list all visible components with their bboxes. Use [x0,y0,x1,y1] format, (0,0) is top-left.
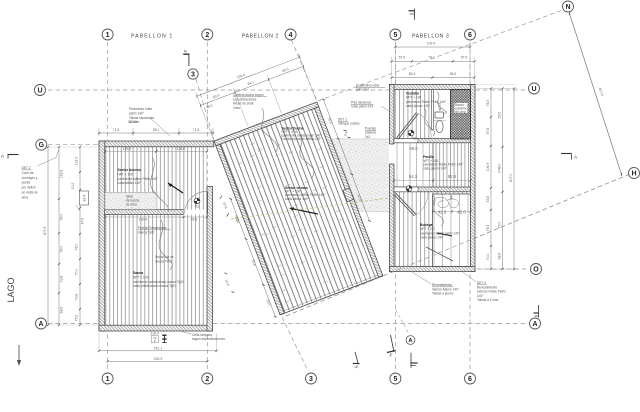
svg-text:PABELLON 3: PABELLON 3 [412,34,449,40]
svg-text:Tabique postes: Tabique postes [338,122,360,126]
svg-text:82.8: 82.8 [448,174,457,179]
svg-text:43.6: 43.6 [486,196,490,203]
svg-text:cada tablas 140°: cada tablas 140° [118,181,143,185]
svg-text:65.3: 65.3 [191,218,198,222]
svg-text:6: 6 [468,32,472,39]
svg-text:3: 3 [309,376,313,383]
svg-text:F: F [154,339,156,343]
svg-text:70.0: 70.0 [75,269,79,276]
svg-text:A: A [38,321,43,328]
svg-text:cada tablas 140°: cada tablas 140° [285,197,310,201]
svg-text:U: U [531,86,536,93]
svg-text:407.9: 407.9 [43,227,47,236]
svg-text:H: H [631,170,636,177]
svg-text:106.9: 106.9 [486,163,490,172]
svg-text:O: O [533,266,539,273]
svg-text:cada plomo 140°: cada plomo 140° [406,104,431,108]
svg-text:407.0: 407.0 [509,174,513,183]
svg-text:A6: A6 [413,137,417,141]
svg-text:6: 6 [468,376,472,383]
svg-text:Puerta Prefabricada: Puerta Prefabricada [138,226,167,230]
svg-text:68.5: 68.5 [498,253,502,260]
svg-text:85.6: 85.6 [450,72,457,76]
svg-text:2: 2 [205,376,209,383]
svg-text:Tablas a 2 cms: Tablas a 2 cms [477,298,499,302]
svg-text:1: 1 [106,376,110,383]
svg-text:LAGO: LAGO [6,277,16,302]
svg-text:U: U [37,87,42,94]
svg-text:P2: P2 [195,205,199,209]
svg-text:109.9: 109.9 [427,42,436,46]
svg-text:obra: obra [22,195,29,199]
svg-text:78.3: 78.3 [486,100,490,107]
svg-text:roble pellín 2X3: roble pellín 2X3 [351,105,373,109]
svg-text:pavimento prefabricado marca T: pavimento prefabricado marca TylO [133,280,184,284]
svg-text:2x2: 2x2 [365,135,370,139]
svg-text:A: A [1,154,4,159]
svg-text:241.1: 241.1 [154,347,163,351]
svg-text:M: M [184,50,187,54]
svg-text:PABELLON 2: PABELLON 2 [242,34,279,40]
svg-text:79.1: 79.1 [428,56,435,60]
svg-text:94.3: 94.3 [409,174,418,179]
svg-text:125.0: 125.0 [177,147,186,151]
svg-text:96.0: 96.0 [409,146,418,151]
svg-text:85.3: 85.3 [409,72,416,76]
svg-text:PABELLON 1: PABELLON 1 [131,34,173,40]
svg-text:73.8: 73.8 [75,294,79,301]
svg-text:de obra: de obra [126,203,137,207]
svg-text:de obra: de obra [455,110,466,114]
svg-text:5: 5 [393,32,397,39]
svg-text:42.0: 42.0 [457,210,466,215]
svg-text:cada plomo 140°: cada plomo 140° [420,236,445,240]
svg-text:119.5: 119.5 [75,157,79,165]
svg-text:71.5: 71.5 [113,128,120,132]
svg-text:palin 2x3: palin 2x3 [356,88,369,92]
svg-text:Tablas a plomo: Tablas a plomo [432,292,454,296]
svg-text:G: G [39,142,45,149]
svg-text:4: 4 [289,32,293,39]
svg-text:P46.0: P46.0 [498,163,502,172]
svg-text:hormigón y: hormigón y [22,176,38,180]
svg-text:Pavimento roble: Pavimento roble [129,107,152,111]
svg-text:cada plomo 140°: cada plomo 140° [423,166,448,170]
svg-text:por definir: por definir [22,186,37,190]
svg-text:pellín 140°: pellín 140° [129,111,145,115]
svg-text:68.5: 68.5 [60,307,64,314]
svg-text:1: 1 [106,32,110,39]
svg-text:98.1: 98.1 [153,128,160,132]
svg-text:70.0: 70.0 [486,254,490,261]
svg-text:73.8: 73.8 [60,276,64,283]
svg-text:129.8: 129.8 [60,170,64,179]
svg-text:según especificaciones: según especificaciones [192,337,225,341]
svg-text:220.9: 220.9 [154,357,163,361]
svg-text:NPT + 100: NPT + 100 [118,172,133,176]
svg-text:75.0: 75.0 [498,222,502,229]
svg-text:N: N [565,4,570,11]
svg-text:DET 2: DET 2 [22,166,31,170]
svg-text:57.5: 57.5 [461,56,468,60]
svg-text:160.4: 160.4 [139,218,148,222]
svg-text:en visita de: en visita de [22,191,38,195]
svg-text:59.5: 59.5 [498,112,502,119]
svg-text:82.4: 82.4 [83,195,87,202]
svg-text:47.6: 47.6 [81,218,85,225]
svg-text:75.6: 75.6 [75,315,79,322]
svg-text:Sauna: Sauna [133,271,143,275]
svg-text:32.4/6: 32.4/6 [128,120,137,124]
svg-text:76.0: 76.0 [60,214,64,221]
svg-text:57.6: 57.6 [486,128,490,135]
svg-text:A: A [574,155,577,160]
svg-text:3: 3 [191,71,195,78]
svg-text:57.5: 57.5 [399,56,406,60]
svg-text:Sector Acceso: Sector Acceso [118,168,141,172]
svg-text:pavimento tablas Pellin 140°: pavimento tablas Pellin 140° [118,177,159,181]
svg-text:c/tabla s/pradols tablas 140°: c/tabla s/pradols tablas 140° [282,137,323,141]
svg-text:5: 5 [393,376,397,383]
svg-text:postre: postre [22,181,31,185]
svg-text:20.2: 20.2 [71,183,75,190]
svg-text:78.5: 78.5 [486,225,490,232]
svg-text:76.0: 76.0 [75,244,79,251]
svg-text:2mts: 2mts [233,106,240,110]
svg-text:A: A [532,321,537,328]
svg-text:125.0: 125.0 [123,147,132,151]
svg-text:76.0: 76.0 [60,246,64,253]
svg-text:42.0: 42.0 [438,210,447,215]
svg-text:71.5: 71.5 [193,128,200,132]
svg-text:218.4: 218.4 [150,331,159,335]
svg-text:NPT + 0.00: NPT + 0.00 [133,275,149,279]
svg-text:marca TylO: marca TylO [138,230,155,234]
svg-text:2: 2 [205,32,209,39]
svg-text:Cubo de: Cubo de [22,171,34,175]
svg-text:cada prefabricado marca TylO: cada prefabricado marca TylO [133,284,176,288]
